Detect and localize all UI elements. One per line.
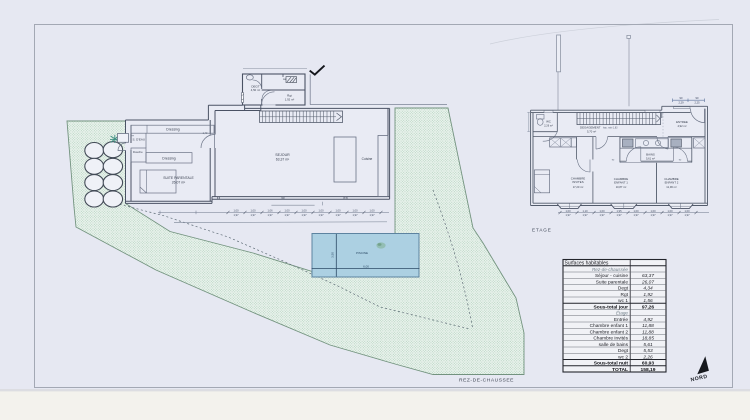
svg-text:Étage: Étage [616, 310, 628, 316]
svg-text:1,00: 1,00 [318, 209, 324, 213]
svg-text:26,07: 26,07 [641, 279, 654, 285]
svg-text:1,97: 1,97 [633, 213, 639, 217]
svg-text:S. D'EAU: S. D'EAU [133, 137, 146, 141]
svg-text:1,97: 1,97 [352, 213, 358, 217]
svg-text:11,88: 11,88 [642, 323, 654, 329]
svg-text:1,00: 1,00 [233, 209, 239, 213]
svg-text:Douche: Douche [133, 150, 143, 154]
svg-text:1,97: 1,97 [650, 213, 656, 217]
svg-text:1,97: 1,97 [335, 213, 341, 217]
svg-text:INVITES: INVITES [572, 180, 583, 184]
svg-text:1,10: 1,10 [582, 209, 588, 213]
svg-text:1,00: 1,00 [684, 209, 690, 213]
svg-text:1,97: 1,97 [369, 213, 375, 217]
svg-text:Surfaces habitables: Surfaces habitables [565, 261, 609, 267]
svg-text:Séjour - cuisine: Séjour - cuisine [595, 273, 628, 279]
svg-text:1,00: 1,00 [352, 209, 358, 213]
svg-text:1,00: 1,00 [284, 209, 290, 213]
svg-text:1,92 m²: 1,92 m² [285, 97, 295, 101]
svg-text:18,85: 18,85 [642, 336, 654, 342]
svg-text:26,07 m²: 26,07 m² [172, 181, 186, 185]
svg-text:Entrée: Entrée [614, 317, 628, 323]
svg-text:SUITE PARENTALE: SUITE PARENTALE [163, 176, 194, 180]
svg-text:Chambre invités: Chambre invités [593, 336, 628, 342]
svg-text:1,97: 1,97 [284, 213, 290, 217]
svg-text:wc 2: wc 2 [618, 355, 628, 361]
svg-text:Chambre enfant 2: Chambre enfant 2 [590, 330, 629, 336]
svg-text:5,61 m²: 5,61 m² [646, 156, 655, 160]
svg-text:1,97: 1,97 [301, 213, 307, 217]
svg-text:4,34: 4,34 [643, 286, 653, 292]
svg-text:1,97: 1,97 [233, 213, 239, 217]
svg-text:6,00: 6,00 [363, 265, 369, 269]
svg-text:Cuisine: Cuisine [362, 157, 373, 161]
svg-text:2,29: 2,29 [678, 101, 684, 105]
svg-text:1,97: 1,97 [684, 213, 690, 217]
svg-text:1,00: 1,00 [667, 209, 673, 213]
svg-text:63,37: 63,37 [642, 273, 654, 279]
svg-text:TOTAL: TOTAL [612, 367, 628, 373]
svg-text:2,26 m²: 2,26 m² [544, 123, 553, 127]
svg-text:1,97: 1,97 [267, 213, 273, 217]
svg-text:DEGAGEMENT: DEGAGEMENT [580, 125, 601, 129]
svg-text:Rez-de-chaussée: Rez-de-chaussée [592, 267, 628, 272]
svg-text:4,50 m²: 4,50 m² [251, 88, 261, 92]
svg-text:10,87 m²: 10,87 m² [616, 185, 627, 189]
svg-text:wc 1: wc 1 [618, 298, 628, 304]
svg-text:Sous-total nuit: Sous-total nuit [594, 361, 629, 367]
svg-text:1,97: 1,97 [616, 213, 622, 217]
svg-text:WC: WC [546, 120, 551, 124]
svg-text:ENFANT 1: ENFANT 1 [614, 181, 628, 185]
svg-text:4,92: 4,92 [643, 317, 653, 323]
svg-text:1,00: 1,00 [633, 209, 639, 213]
svg-text:1,06: 1,06 [267, 209, 273, 213]
svg-text:Sous-total jour: Sous-total jour [593, 305, 628, 311]
svg-text:17,20 m²: 17,20 m² [573, 185, 584, 189]
svg-text:60,93: 60,93 [642, 361, 655, 367]
svg-text:1,00: 1,00 [599, 209, 605, 213]
svg-text:Chambre enfant 1: Chambre enfant 1 [590, 323, 629, 329]
svg-text:2,25: 2,25 [694, 101, 700, 105]
svg-text:11,96 m²: 11,96 m² [666, 185, 677, 189]
svg-text:BAINS: BAINS [646, 153, 655, 157]
svg-text:PISCINE: PISCINE [356, 251, 368, 255]
svg-text:158,19: 158,19 [641, 367, 656, 373]
svg-text:3,50: 3,50 [331, 252, 335, 258]
svg-text:1,97: 1,97 [599, 213, 605, 217]
svg-text:Degt: Degt [618, 348, 629, 354]
svg-text:1,00: 1,00 [650, 209, 656, 213]
svg-text:1,00: 1,00 [565, 209, 571, 213]
svg-text:1,00: 1,00 [250, 209, 256, 213]
svg-text:63,37 m²: 63,37 m² [276, 158, 290, 162]
svg-text:Suite parentale: Suite parentale [596, 279, 629, 285]
svg-text:4,92 m²: 4,92 m² [677, 124, 686, 128]
svg-text:1,97: 1,97 [582, 213, 588, 217]
svg-text:Dressing: Dressing [162, 156, 175, 160]
svg-text:ENFANT 2: ENFANT 2 [665, 181, 679, 185]
svg-text:salle de bains: salle de bains [599, 342, 629, 348]
svg-text:1,92: 1,92 [643, 292, 653, 298]
svg-text:2,26: 2,26 [642, 355, 653, 361]
svg-text:1,97: 1,97 [318, 213, 324, 217]
svg-text:1,00: 1,00 [369, 209, 375, 213]
svg-text:1,97: 1,97 [250, 213, 256, 217]
svg-text:SEJOUR: SEJOUR [275, 153, 290, 157]
svg-text:hau. mini 1,83: hau. mini 1,83 [603, 127, 618, 129]
svg-text:REZ-DE-CHAUSSEE: REZ-DE-CHAUSSEE [459, 377, 514, 383]
svg-text:11,88: 11,88 [642, 330, 654, 336]
svg-text:Rgt: Rgt [621, 292, 629, 298]
svg-text:5,70 m²: 5,70 m² [587, 129, 596, 133]
svg-text:1,97: 1,97 [565, 213, 571, 217]
svg-text:1,97: 1,97 [667, 213, 673, 217]
svg-text:5,53: 5,53 [643, 348, 653, 354]
svg-text:5,61: 5,61 [643, 342, 653, 348]
svg-text:1,56: 1,56 [643, 298, 653, 304]
svg-text:ETAGE: ETAGE [532, 228, 552, 233]
svg-text:1,00: 1,00 [335, 209, 341, 213]
svg-text:97,26: 97,26 [642, 305, 655, 311]
svg-text:1,95: 1,95 [616, 209, 622, 213]
svg-text:ENTREE: ENTREE [676, 120, 688, 124]
svg-text:Dressing: Dressing [166, 128, 179, 132]
svg-text:Degt: Degt [618, 286, 629, 292]
svg-text:1,00: 1,00 [301, 209, 307, 213]
